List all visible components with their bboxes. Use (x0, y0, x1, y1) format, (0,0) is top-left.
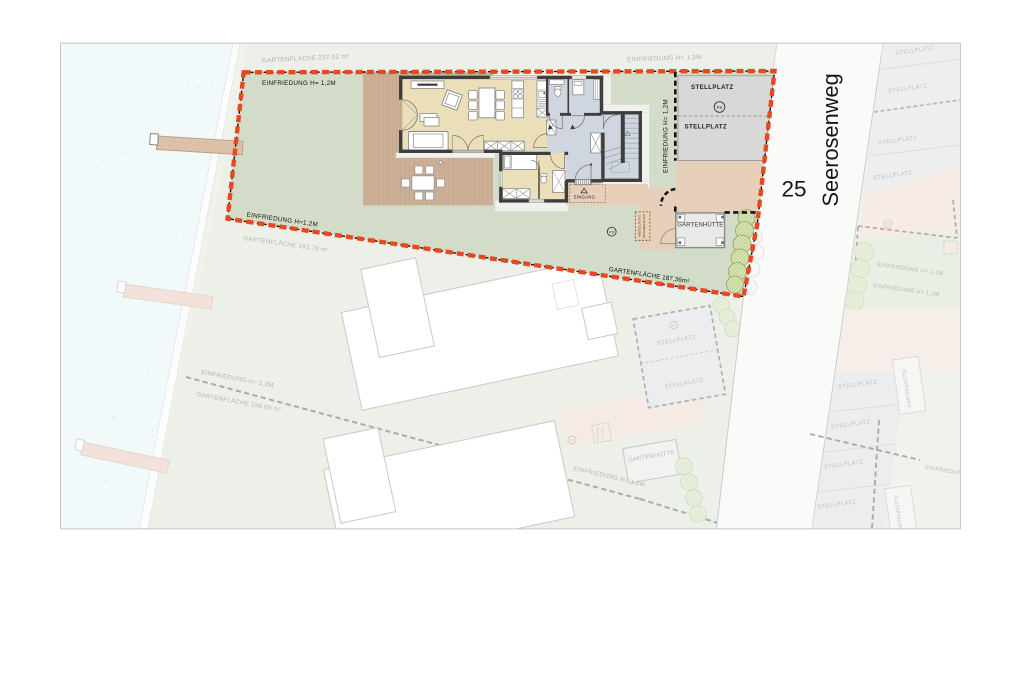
svg-text:PS: PS (886, 223, 890, 227)
svg-text:MÜLLBEHÄLTER: MÜLLBEHÄLTER (642, 213, 646, 237)
svg-text:PS: PS (570, 439, 574, 443)
svg-text:PS: PS (671, 323, 676, 328)
svg-text:GARTENHÜTTE: GARTENHÜTTE (677, 222, 723, 229)
svg-text:ABSTELLPLATZ: ABSTELLPLATZ (638, 215, 642, 237)
svg-text:PS: PS (717, 105, 723, 110)
svg-text:Seerosenweg: Seerosenweg (818, 73, 843, 206)
svg-text:EINFRIEDUNG H= 1,2M: EINFRIEDUNG H= 1,2M (262, 80, 336, 87)
svg-text:STELLPLATZ: STELLPLATZ (685, 124, 728, 131)
svg-text:MÜLLBEH.: MÜLLBEH. (602, 427, 605, 439)
svg-text:ABSTELLPL.: ABSTELLPL. (597, 426, 600, 440)
svg-text:STELLPLATZ: STELLPLATZ (691, 84, 734, 91)
svg-text:25: 25 (781, 177, 806, 202)
svg-text:EINGANG: EINGANG (574, 195, 595, 200)
svg-text:PS: PS (609, 230, 615, 234)
svg-text:EINFRIEDUNG H= 1,2M: EINFRIEDUNG H= 1,2M (663, 99, 670, 173)
